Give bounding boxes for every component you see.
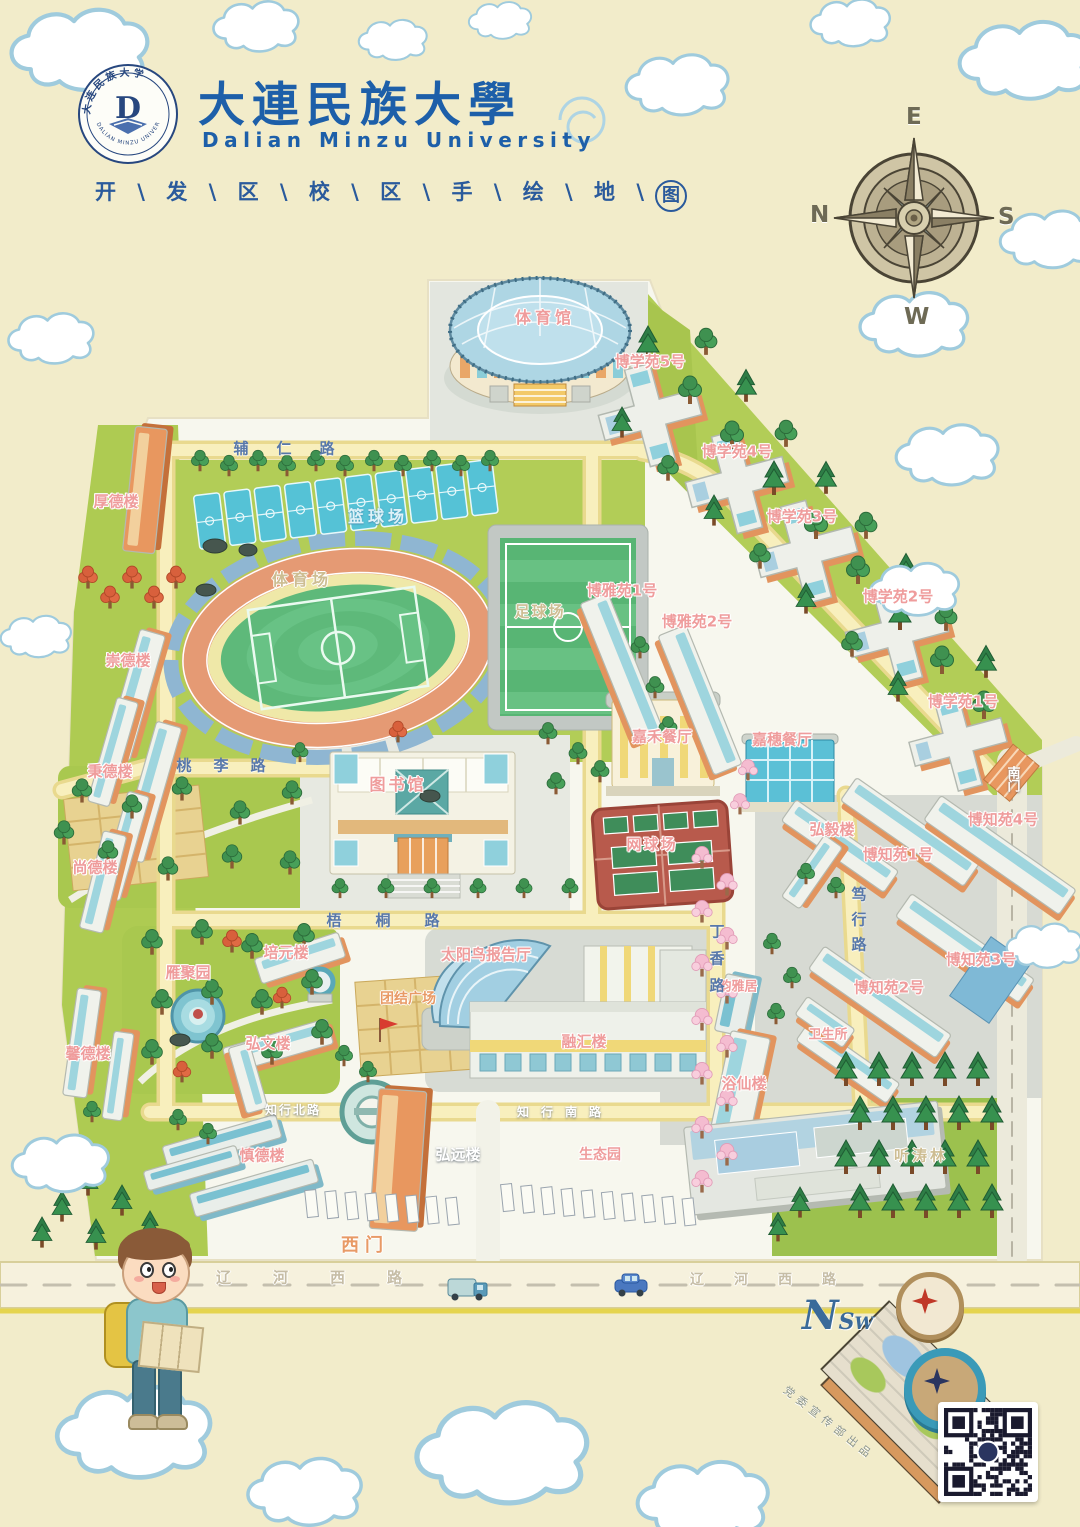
- map-label: 生态园: [579, 1148, 621, 1162]
- map-label: 足球场: [514, 605, 565, 620]
- map-label: 慎德楼: [239, 1149, 284, 1164]
- map-label: 嘉禾餐厅: [632, 730, 692, 745]
- header: 大连民族大学 DALIAN MINZU UNIVERSITY D 大連民族大學 …: [0, 0, 720, 230]
- map-label: 辽河西路: [216, 1271, 444, 1286]
- university-logo: 大连民族大学 DALIAN MINZU UNIVERSITY D: [76, 62, 180, 166]
- map-label: 博雅苑2号: [662, 615, 732, 630]
- map-label: 浴仙楼: [721, 1077, 766, 1092]
- map-label: 卫生所: [808, 1029, 847, 1042]
- map-label: 馨德楼: [65, 1047, 110, 1062]
- map-label: 博知苑4号: [968, 813, 1038, 828]
- map-label: 融汇楼: [561, 1035, 606, 1050]
- map-label: 弘毅楼: [809, 823, 854, 838]
- map-label: 听涛林: [894, 1149, 948, 1164]
- map-label: 南门: [1006, 766, 1019, 792]
- map-label: 图书馆: [369, 777, 426, 793]
- map-label: 雁聚园: [165, 966, 210, 981]
- map-label: 嘉穗餐厅: [752, 733, 812, 748]
- map-label: 博学苑2号: [863, 590, 933, 605]
- compass-north: N: [810, 202, 829, 228]
- map-label: 桃李路: [176, 759, 287, 774]
- slogan-chars: 开 \ 发 \ 区 \ 校 \ 区 \ 手 \ 绘 \ 地 \: [95, 180, 651, 204]
- boy-illustration: [96, 1228, 246, 1518]
- map-label: 体育馆: [515, 310, 575, 326]
- subtitle-slogan: 开 \ 发 \ 区 \ 校 \ 区 \ 手 \ 绘 \ 地 \图: [95, 176, 687, 212]
- map-label: 篮球场: [348, 509, 408, 525]
- map-label: 太阳鸟报告厅: [441, 948, 531, 963]
- map-label: 博学苑3号: [767, 510, 837, 525]
- map-label: 尚德楼: [72, 861, 117, 876]
- map-label: 知行北路: [265, 1104, 321, 1116]
- map-label: 博学苑4号: [702, 445, 772, 460]
- paper-map-icon: [138, 1321, 204, 1373]
- slogan-last-char: 图: [655, 180, 687, 212]
- map-label: 知行南路: [517, 1106, 613, 1118]
- map-label: 辅仁路: [233, 442, 362, 457]
- map-label: 博知苑2号: [854, 981, 924, 996]
- map-label: 培元楼: [263, 946, 308, 961]
- compass-south: S: [998, 204, 1015, 230]
- compass-east: E: [906, 104, 922, 130]
- map-label: 西门: [341, 1237, 389, 1255]
- map-label: 厚德楼: [93, 495, 138, 510]
- map-label: 笃行路: [851, 887, 866, 962]
- map-label: 辽河西路: [690, 1273, 866, 1287]
- map-label: 团结广场: [380, 992, 436, 1006]
- map-label: 秉德楼: [87, 765, 132, 780]
- compass-dial-icon: [896, 1272, 964, 1340]
- map-label: 体育场: [272, 572, 332, 588]
- map-label: 崇德楼: [105, 654, 150, 669]
- page-title: 大連民族大學: [198, 66, 522, 135]
- map-label: 博知苑1号: [863, 848, 933, 863]
- minimap-letter-w: W: [854, 1314, 873, 1334]
- map-label: 丁香路: [709, 924, 724, 1005]
- campus-map-poster: 体育馆博学苑5号博学苑4号博学苑3号博学苑2号博学苑1号厚德楼崇德楼秉德楼尚德楼…: [0, 0, 1080, 1527]
- minimap-corner-art: NSW 党委宣传部出品: [796, 1286, 1066, 1521]
- map-label: 博雅苑1号: [587, 584, 657, 599]
- minimap-letter-s: S: [839, 1309, 855, 1335]
- map-label: 博学苑1号: [928, 695, 998, 710]
- map-label: 弘文楼: [245, 1037, 290, 1052]
- map-label: 博学苑5号: [615, 355, 685, 370]
- map-label: 弘远楼: [435, 1148, 480, 1163]
- qr-code: [938, 1402, 1038, 1502]
- compass-rose: E S W N: [826, 96, 1006, 336]
- page-title-english: Dalian Minzu University: [202, 128, 596, 152]
- minimap-letter-n: N: [802, 1292, 839, 1339]
- map-label: 梧桐路: [326, 914, 473, 929]
- compass-icon: [826, 96, 1006, 336]
- map-label: 网球场: [626, 838, 677, 853]
- compass-west: W: [904, 304, 929, 330]
- map-label: 博知苑3号: [946, 953, 1016, 968]
